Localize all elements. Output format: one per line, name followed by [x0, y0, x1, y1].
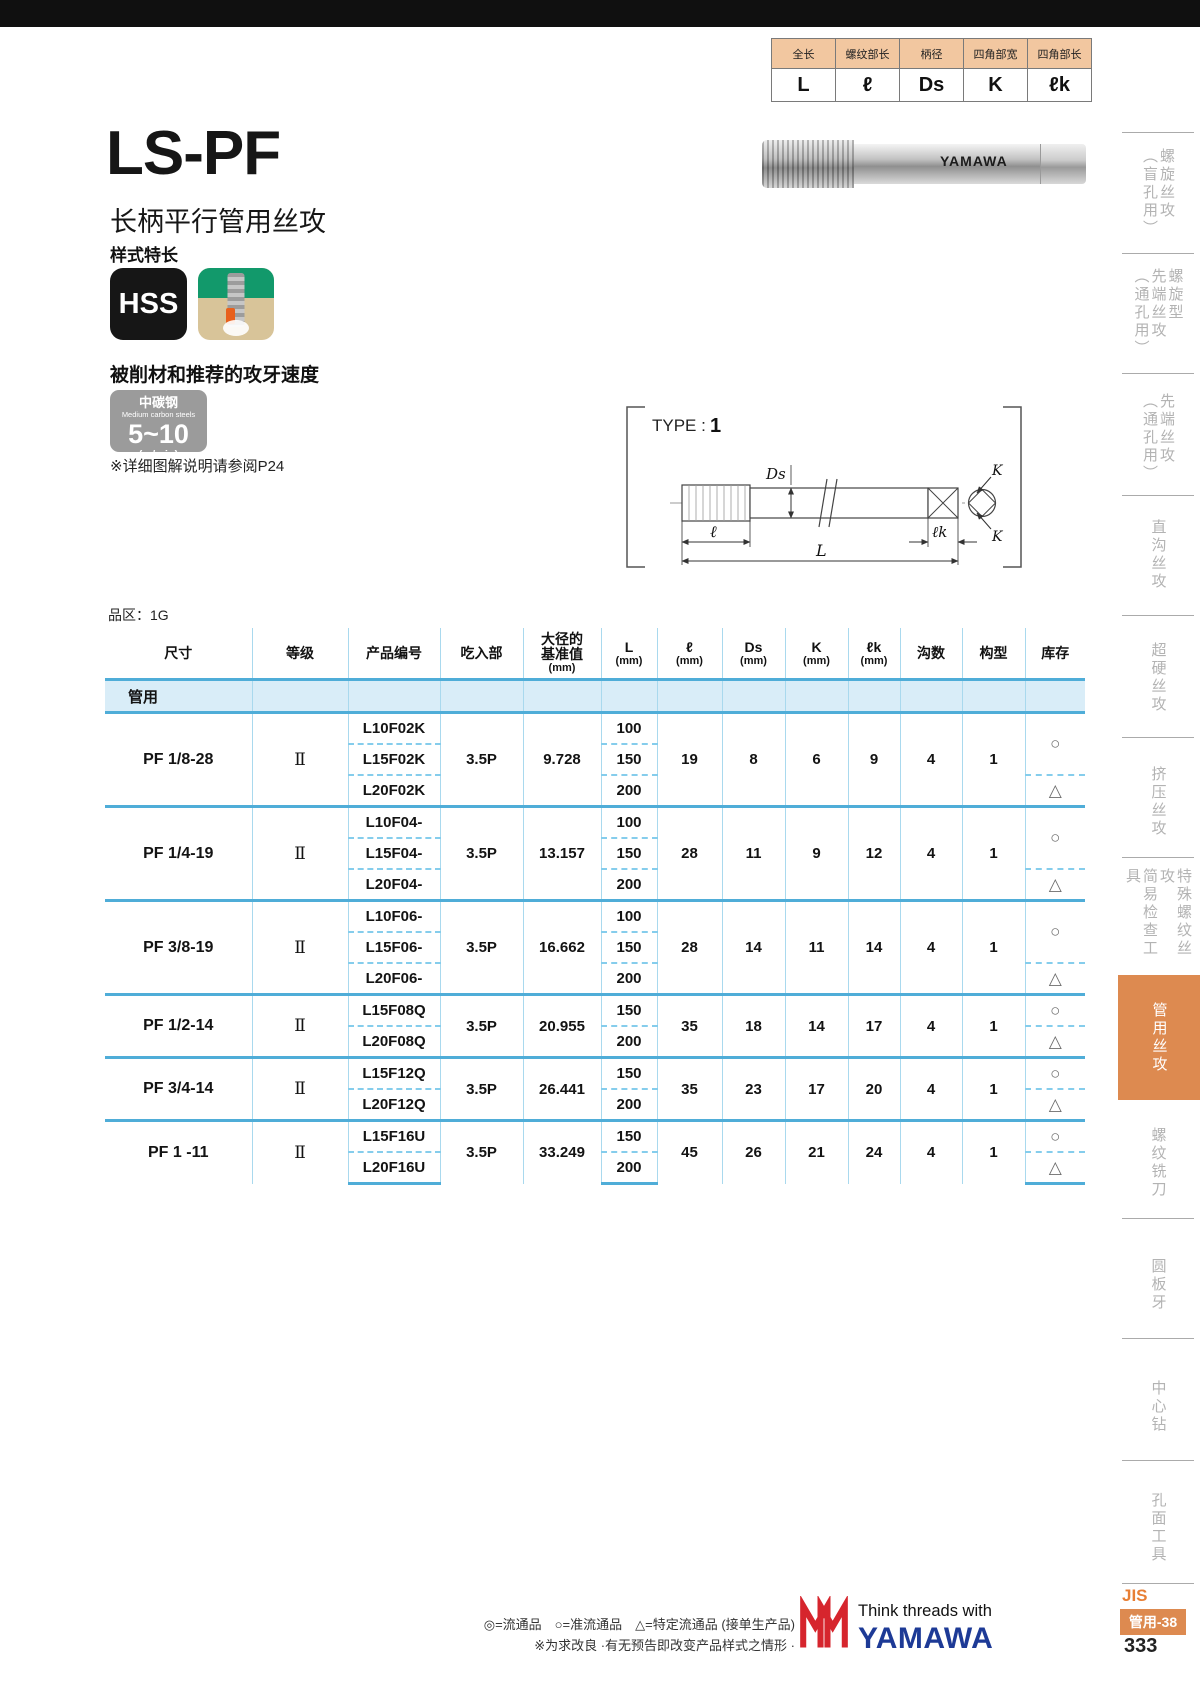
sidebar-divider [1122, 373, 1194, 374]
dim-k-top: K [991, 463, 1004, 479]
type-label: TYPE : [652, 416, 706, 435]
legend-line-2: ※为求改良 ·有无预告即改变产品样式之情形 · [484, 1635, 795, 1656]
cross-section-circle [969, 490, 996, 517]
stock-circle: ○ [1025, 1058, 1085, 1090]
product-code: L10F04- [348, 807, 440, 839]
stock-legend: ◎=流通品 ○=准流通品 △=特定流通品 (接单生产品) ※为求改良 ·有无预告… [484, 1614, 795, 1656]
col-header-size: 尺寸 [105, 628, 252, 680]
shank-section [750, 488, 928, 518]
sidebar-item-center-drill[interactable]: 中心钻 [1118, 1370, 1198, 1444]
stock-circle: ○ [1025, 901, 1085, 964]
sidebar-item-forming-tap[interactable]: 挤压丝攻 [1118, 759, 1198, 845]
product-code: L20F04- [348, 869, 440, 901]
sidebar-divider [1122, 1460, 1194, 1461]
sidebar-item-carbide-tap[interactable]: 超硬丝攻 [1118, 635, 1198, 721]
col-header-lk: ℓk(mm) [848, 628, 900, 680]
sidebar-divider [1122, 857, 1194, 858]
stock-triangle: △ [1025, 869, 1085, 901]
speed-section-heading: 被削材和推荐的攻牙速度 [110, 360, 319, 387]
dim-k-bottom: K [991, 529, 1004, 545]
col-header-basic-dia: 大径的基准值(mm) [523, 628, 601, 680]
stock-circle: ○ [1025, 713, 1085, 776]
dim-L: L [815, 541, 827, 560]
sidebar-item-straight-flute-tap[interactable]: 直沟丝攻 [1118, 512, 1198, 598]
size-cell: PF 1 -11 [105, 1121, 252, 1184]
table-header-row: 尺寸 等级 产品编号 吃入部 大径的基准值(mm) L(mm) ℓ(mm) Ds… [105, 628, 1085, 680]
tap-photo-thread [762, 140, 854, 188]
product-code: L15F08Q [348, 995, 440, 1027]
dimension-legend-header-row: 全长 螺纹部长 柄径 四角部宽 四角部长 [772, 39, 1092, 69]
top-black-bar [0, 0, 1200, 27]
col-header-grade: 等级 [252, 628, 348, 680]
size-cell: PF 1/4-19 [105, 807, 252, 901]
table-row: PF 1/2-14 Ⅱ L15F08Q 3.5P 20.955 150 35 1… [105, 995, 1085, 1027]
bracket-left [627, 407, 645, 567]
dimension-legend-table: 全长 螺纹部长 柄径 四角部宽 四角部长 L ℓ Ds K ℓk [771, 38, 1092, 102]
product-code: L15F04- [348, 838, 440, 869]
legend-value: L [772, 69, 836, 102]
sidebar-divider [1122, 1338, 1194, 1339]
stock-triangle: △ [1025, 1152, 1085, 1184]
sidebar-divider [1122, 615, 1194, 616]
page-number: 333 [1124, 1635, 1157, 1658]
size-cell: PF 3/4-14 [105, 1058, 252, 1121]
product-code: L20F02K [348, 775, 440, 807]
sidebar-divider [1122, 132, 1194, 133]
sidebar-item-point-tap-through[interactable]: 先端丝攻 （通孔用） [1118, 390, 1198, 485]
col-header-stock: 库存 [1025, 628, 1085, 680]
legend-value: K [964, 69, 1028, 102]
stock-triangle: △ [1025, 775, 1085, 807]
spec-table: 尺寸 等级 产品编号 吃入部 大径的基准值(mm) L(mm) ℓ(mm) Ds… [105, 628, 1085, 1185]
hss-badge: HSS [110, 268, 187, 340]
sidebar-item-hole-tools[interactable]: 孔面工具 [1118, 1483, 1198, 1573]
product-code: L15F02K [348, 744, 440, 775]
legend-header: 全长 [772, 39, 836, 69]
legend-value: Ds [900, 69, 964, 102]
product-code: L15F06- [348, 932, 440, 963]
size-cell: PF 3/8-19 [105, 901, 252, 995]
legend-line-1: ◎=流通品 ○=准流通品 △=特定流通品 (接单生产品) [484, 1614, 795, 1635]
col-header-type: 构型 [962, 628, 1025, 680]
table-row: PF 1/4-19 Ⅱ L10F04- 3.5P 13.157 100 28 1… [105, 807, 1085, 839]
speed-value: 5~10 [110, 421, 207, 448]
col-header-chamfer: 吃入部 [440, 628, 523, 680]
page-tag: 管用-38 [1120, 1609, 1186, 1635]
table-row: PF 1 -11 Ⅱ L15F16U 3.5P 33.249 150 45 26… [105, 1121, 1085, 1153]
dim-ds: Ds [765, 465, 786, 483]
size-cell: PF 1/2-14 [105, 995, 252, 1058]
size-cell: PF 1/8-28 [105, 713, 252, 807]
stock-triangle: △ [1025, 1026, 1085, 1058]
product-code: L20F12Q [348, 1089, 440, 1121]
jis-label: JIS [1122, 1586, 1148, 1606]
table-row: PF 1/8-28 Ⅱ L10F02K 3.5P 9.728 100 19 8 … [105, 713, 1085, 745]
legend-header: 柄径 [900, 39, 964, 69]
through-hole-tap-icon [198, 268, 274, 340]
logo-brand: YAMAWA [858, 1622, 993, 1656]
dimension-legend-value-row: L ℓ Ds K ℓk [772, 69, 1092, 102]
product-code: L15F16U [348, 1121, 440, 1153]
type-value: 1 [710, 415, 721, 437]
product-code: L15F12Q [348, 1058, 440, 1090]
sidebar-divider [1122, 1583, 1194, 1584]
yamawa-logo: Think threads with YAMAWA [798, 1596, 993, 1656]
stock-circle: ○ [1025, 995, 1085, 1027]
bracket-right [1003, 407, 1021, 567]
sidebar-divider [1122, 253, 1194, 254]
logo-tagline: Think threads with [858, 1602, 993, 1621]
dim-lk: ℓk [932, 523, 947, 541]
table-category-row: 管用 [105, 680, 1085, 713]
col-header-L: L(mm) [601, 628, 657, 680]
legend-value: ℓk [1028, 69, 1092, 102]
stock-circle: ○ [1025, 1121, 1085, 1153]
sidebar-item-round-die[interactable]: 圆板牙 [1118, 1248, 1198, 1322]
style-note: 样式特长 [110, 241, 178, 266]
sidebar-item-special-thread-tap[interactable]: 特殊螺纹丝攻 简易检查工具 [1118, 868, 1198, 968]
catalog-page: 全长 螺纹部长 柄径 四角部宽 四角部长 L ℓ Ds K ℓk YAMAWA … [0, 0, 1200, 1697]
product-code: L20F16U [348, 1152, 440, 1184]
page-title: LS-PF [106, 118, 280, 189]
product-code: L10F02K [348, 713, 440, 745]
product-code: L20F06- [348, 963, 440, 995]
sidebar-divider [1122, 495, 1194, 496]
sidebar-item-thread-mill[interactable]: 螺纹铣刀 [1118, 1126, 1198, 1200]
speed-box: 中碳钢 Medium carbon steels 5~10 (m/min) [110, 390, 207, 452]
col-header-l: ℓ(mm) [657, 628, 722, 680]
type-diagram: TYPE : 1 Ds ℓ ℓk L K K [578, 395, 1088, 580]
col-header-K: K(mm) [785, 628, 848, 680]
yamawa-logo-icon [798, 1596, 850, 1654]
thread-section [682, 485, 750, 521]
tap-photo-square-end [1040, 144, 1086, 184]
legend-header: 四角部长 [1028, 39, 1092, 69]
dim-l: ℓ [710, 522, 717, 541]
product-code: L10F06- [348, 901, 440, 933]
stock-circle: ○ [1025, 807, 1085, 870]
product-area-label: 品区：1G [108, 605, 169, 625]
stock-triangle: △ [1025, 963, 1085, 995]
stock-triangle: △ [1025, 1089, 1085, 1121]
material-name-en: Medium carbon steels [110, 411, 207, 419]
col-header-Ds: Ds(mm) [722, 628, 785, 680]
sidebar-item-spiral-point-tap[interactable]: 螺旋型 先端丝攻 （通孔用） [1118, 265, 1198, 360]
legend-header: 螺纹部长 [836, 39, 900, 69]
material-name-cn: 中碳钢 [110, 396, 207, 409]
product-code: L20F08Q [348, 1026, 440, 1058]
tap-photo-brand: YAMAWA [940, 153, 1008, 169]
col-header-product: 产品编号 [348, 628, 440, 680]
legend-header: 四角部宽 [964, 39, 1028, 69]
reference-note: ※详细图解说明请参阅P24 [110, 455, 284, 476]
sidebar-divider [1122, 737, 1194, 738]
product-name-cn: 长柄平行管用丝攻 [110, 200, 326, 239]
sidebar-divider [1122, 1218, 1194, 1219]
table-row: PF 3/4-14 Ⅱ L15F12Q 3.5P 26.441 150 35 2… [105, 1058, 1085, 1090]
col-header-flutes: 沟数 [900, 628, 962, 680]
sidebar-item-pipe-tap-active[interactable]: 管用丝攻 [1118, 975, 1200, 1100]
legend-value: ℓ [836, 69, 900, 102]
table-row: PF 3/8-19 Ⅱ L10F06- 3.5P 16.662 100 28 1… [105, 901, 1085, 933]
category-label: 管用 [105, 680, 252, 713]
sidebar-item-spiral-tap-blind[interactable]: 螺旋丝攻 （盲孔用） [1118, 145, 1198, 240]
